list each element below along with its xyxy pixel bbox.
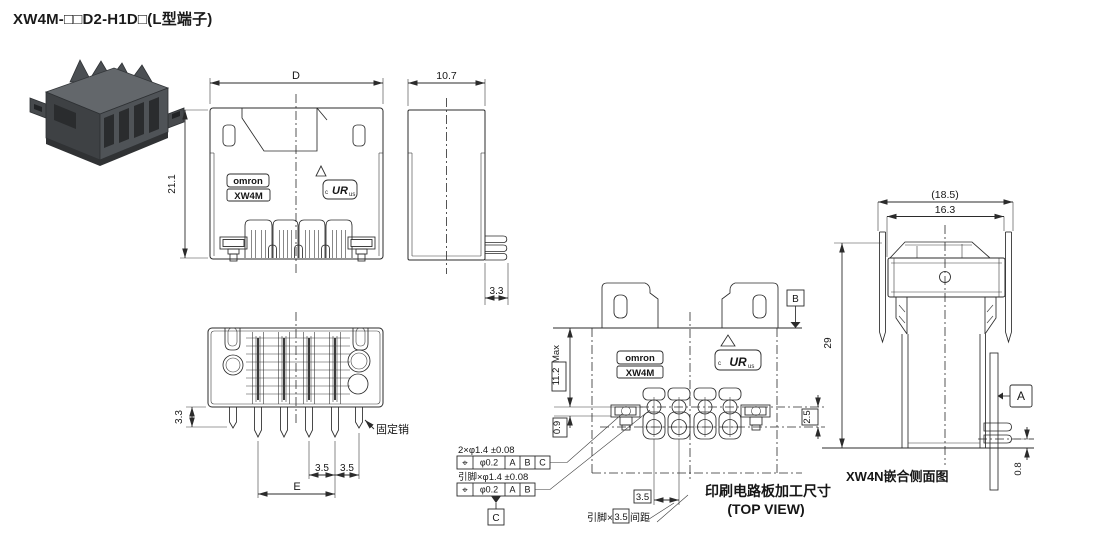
dim-row-spacing-label: 2.5: [802, 410, 813, 423]
mating-view-latch-hooks: [896, 297, 996, 334]
ul-us-text: us: [748, 364, 754, 370]
polarity-triangle-icon: [316, 166, 326, 176]
dim-offset-label: 0.9: [552, 421, 563, 434]
dim-pin-length-label: 3.3: [174, 410, 185, 424]
ul-c-text: c: [718, 361, 721, 367]
pitch-note-prefix: 引脚×: [587, 511, 613, 524]
datum-a: A: [998, 385, 1033, 407]
bottom-view-dimensions: 3.3 固定销 3.5 3.5 E: [174, 407, 409, 498]
caption-line1: 印刷电路板加工尺寸: [705, 483, 831, 499]
mating-view-dimensions: (18.5) 16.3 29 0.8: [823, 189, 1034, 476]
dim-height-label: 21.1: [167, 174, 178, 194]
callout-pins-tolerance: φ0.2: [480, 485, 498, 495]
pcb-view-caption: 印刷电路板加工尺寸 (TOP VIEW): [705, 483, 831, 517]
datum-b-label: B: [792, 294, 799, 305]
dim-pcb-offset-label: 0.8: [1013, 462, 1024, 475]
callout-fixing-tolerance: φ0.2: [480, 458, 498, 468]
dim-width-label: 10.7: [436, 70, 457, 82]
callout-pins-datum-2: B: [524, 485, 530, 495]
model-text: XW4M: [626, 368, 655, 379]
pcb-fixing-hole-right: [741, 405, 770, 430]
dim-hole-pitch-label: 3.5: [636, 492, 649, 503]
omron-logo-text: omron: [625, 353, 655, 364]
callout-fixing-datum-1: A: [509, 458, 515, 468]
dim-pitch-a-label: 3.5: [315, 463, 329, 474]
datasheet-page: XW4M-□□D2-H1D□(L型端子): [0, 0, 1093, 538]
bottom-view-outline: [208, 312, 383, 424]
connector-photo-illustration: [30, 60, 184, 166]
dim-pitch-b-label: 3.5: [340, 463, 354, 474]
mating-view-lower-body: [902, 334, 986, 448]
position-tolerance-icon: ⌖: [462, 458, 468, 469]
pcb-top-view-drawing: omron XW4M c UR us: [450, 262, 850, 538]
dim-outer-ref-label: (18.5): [931, 189, 958, 201]
datum-c-label: C: [492, 513, 499, 524]
mating-side-view-drawing: (18.5) 16.3 29 0.8 A XW4N嵌合侧面图: [818, 185, 1093, 538]
front-view-pins: [245, 220, 352, 258]
callout-fixing-datum-2: B: [524, 458, 530, 468]
caption-line2: (TOP VIEW): [727, 501, 804, 517]
page-title: XW4M-□□D2-H1D□(L型端子): [13, 8, 213, 29]
callout-pins-datum-1: A: [509, 485, 515, 495]
gdt-callout-fixing: 2×φ1.4 ±0.08 ⌖ φ0.2 A B C: [457, 414, 622, 469]
pcb-hole-pattern: [554, 388, 825, 439]
mating-view-outline: [822, 225, 1034, 490]
dim-width-label: D: [292, 70, 300, 82]
side-view-outline: [408, 98, 485, 274]
dim-body-max-label: 11.2: [551, 368, 562, 386]
dim-body-max-suffix: Max: [551, 345, 562, 363]
pitch-note-suffix: 间距: [630, 511, 650, 524]
position-tolerance-icon: ⌖: [462, 485, 468, 496]
bottom-view-drawing: 3.3 固定销 3.5 3.5 E: [160, 308, 455, 536]
callout-pins-label: 引脚×φ1.4 ±0.08: [458, 472, 528, 483]
side-view-pins: [485, 236, 507, 260]
ul-recognized-icon: UR: [729, 355, 747, 369]
ul-us-text: us: [349, 192, 355, 198]
dim-span-label: E: [293, 481, 300, 493]
product-photo: [18, 52, 188, 170]
pcb-view-branding: omron XW4M c UR us: [617, 335, 761, 379]
front-view-branding: omron XW4M c UR us: [227, 166, 357, 202]
dim-inner-label: 16.3: [935, 204, 956, 216]
pcb-board-profile: [990, 353, 998, 490]
pcb-connector-phantom-outline: [553, 283, 802, 480]
pitch-note-value: 3.5: [614, 512, 627, 523]
front-view-dimensions: D 21.1: [167, 70, 383, 258]
ul-recognized-icon: UR: [332, 185, 348, 197]
polarity-triangle-icon: [721, 335, 735, 346]
front-view-drawing: omron XW4M c UR us: [165, 58, 400, 316]
datum-a-label: A: [1017, 389, 1025, 403]
model-text: XW4M: [234, 191, 263, 202]
omron-logo-text: omron: [233, 176, 263, 187]
callout-fixing-datum-3: C: [539, 458, 546, 468]
mating-view-caption: XW4N嵌合侧面图: [846, 469, 949, 484]
pcb-fixing-hole-left: [611, 405, 640, 430]
dim-height-label: 29: [823, 337, 834, 349]
datum-b: B: [787, 290, 804, 328]
callout-fixing-label: 2×φ1.4 ±0.08: [458, 445, 515, 456]
ul-c-text: c: [325, 190, 328, 196]
fixing-pin-label: 固定销: [376, 422, 409, 436]
